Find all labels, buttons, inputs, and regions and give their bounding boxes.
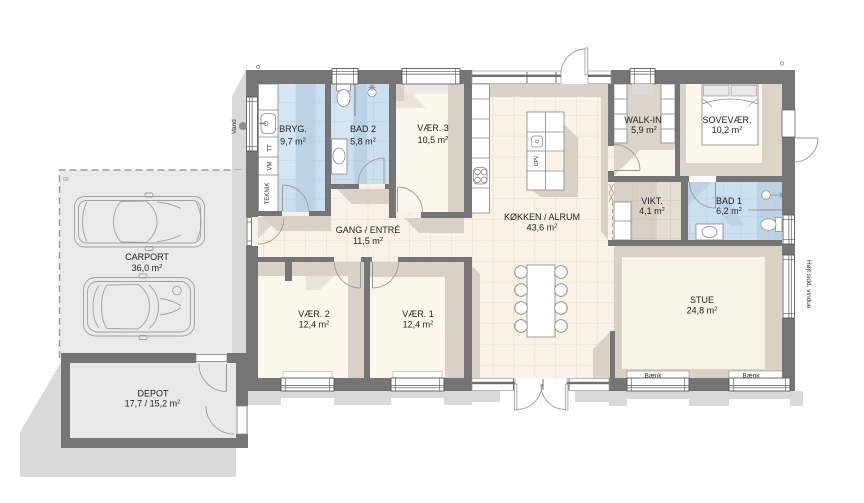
svg-text:12,4 m2: 12,4 m2 (299, 320, 330, 330)
svg-text:24,8 m2: 24,8 m2 (687, 306, 718, 316)
svg-text:VÆR. 1: VÆR. 1 (402, 309, 434, 319)
svg-text:BAD 1: BAD 1 (716, 196, 742, 206)
svg-text:12,4 m2: 12,4 m2 (403, 320, 434, 330)
svg-text:Højt sidd. vindue: Højt sidd. vindue (805, 260, 812, 309)
svg-text:BAD 2: BAD 2 (350, 124, 376, 134)
svg-text:GANG / ENTRÉ: GANG / ENTRÉ (336, 225, 401, 235)
svg-text:VÆR. 3: VÆR. 3 (417, 123, 449, 133)
svg-text:SOVEVÆR.: SOVEVÆR. (702, 115, 751, 125)
svg-text:6,2 m2: 6,2 m2 (716, 206, 742, 216)
svg-text:WALK-IN: WALK-IN (624, 115, 661, 125)
svg-text:9,7 m2: 9,7 m2 (280, 137, 306, 147)
svg-text:CARPORT: CARPORT (125, 252, 169, 262)
svg-text:11,5 m2: 11,5 m2 (353, 236, 383, 246)
svg-text:OPV: OPV (534, 155, 540, 166)
svg-text:4,1 m2: 4,1 m2 (639, 206, 665, 216)
svg-text:VIKT.: VIKT. (641, 196, 663, 206)
svg-text:10,5 m2: 10,5 m2 (418, 135, 449, 145)
svg-text:STUE: STUE (690, 295, 714, 305)
svg-text:36,0 m2: 36,0 m2 (132, 263, 163, 273)
svg-text:TEKNIK: TEKNIK (265, 183, 271, 205)
svg-text:KØKKEN / ALRUM: KØKKEN / ALRUM (504, 212, 580, 222)
svg-text:TT: TT (268, 144, 274, 152)
svg-text:VM: VM (268, 161, 274, 170)
svg-text:5,9 m2: 5,9 m2 (631, 125, 657, 135)
svg-text:VÆR. 2: VÆR. 2 (298, 309, 330, 319)
svg-text:Vand: Vand (231, 119, 238, 134)
svg-text:DEPOT: DEPOT (137, 389, 169, 399)
svg-text:5,8 m2: 5,8 m2 (350, 137, 376, 147)
svg-text:10,2 m2: 10,2 m2 (712, 125, 743, 135)
svg-text:17,7 / 15,2 m2: 17,7 / 15,2 m2 (125, 399, 181, 409)
svg-text:43,6 m2: 43,6 m2 (527, 223, 558, 233)
svg-text:BRYG.: BRYG. (279, 124, 307, 134)
svg-text:02: 02 (63, 177, 69, 183)
